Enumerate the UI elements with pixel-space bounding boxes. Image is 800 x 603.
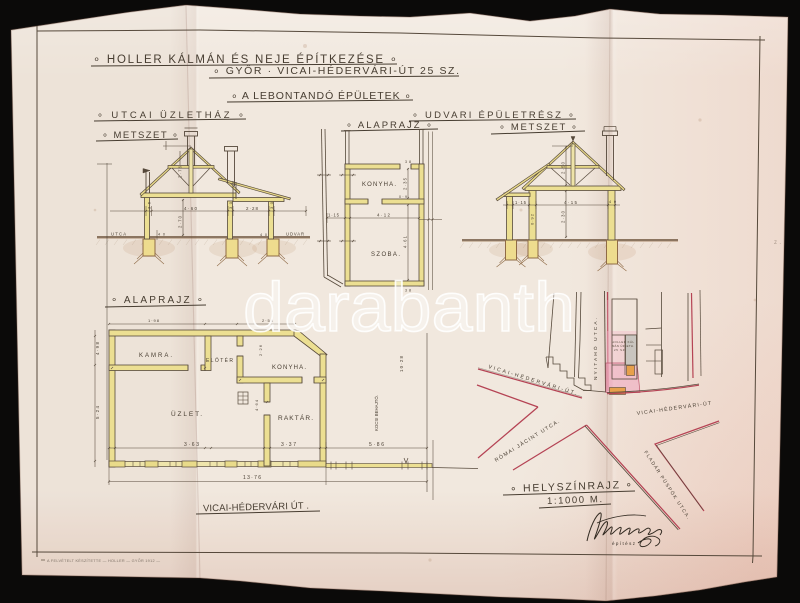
svg-text:4·61: 4·61 (403, 235, 408, 248)
svg-text:UTCA: UTCA (111, 232, 126, 237)
svg-text:1·15: 1·15 (328, 213, 340, 218)
svg-text:2·30: 2·30 (561, 210, 566, 223)
svg-text:darabanth: darabanth (243, 268, 575, 346)
svg-text:30: 30 (269, 201, 274, 209)
svg-text:5·24: 5·24 (95, 406, 100, 419)
svg-text:3·37: 3·37 (281, 442, 296, 448)
svg-text:30: 30 (228, 201, 233, 209)
svg-text:4·98: 4·98 (95, 342, 100, 355)
svg-text:13·76: 13·76 (243, 475, 261, 481)
svg-text:KONYHA.: KONYHA. (272, 365, 306, 371)
svg-text:2·76: 2·76 (178, 165, 183, 178)
svg-text:2·70: 2·70 (178, 215, 183, 228)
svg-text:2·28: 2·28 (246, 206, 259, 211)
svg-text:1·98: 1·98 (148, 318, 160, 323)
svg-text:0·92: 0·92 (530, 213, 535, 225)
svg-text:2·50: 2·50 (561, 161, 566, 174)
svg-text:3·63: 3·63 (184, 442, 199, 448)
svg-text:5·86: 5·86 (369, 442, 384, 448)
svg-text:36: 36 (147, 201, 152, 209)
svg-text:4·64: 4·64 (254, 399, 259, 411)
svg-text:∘ GYŐR · VICAI-HÉDERVÁRI-ÚT 25: ∘ GYŐR · VICAI-HÉDERVÁRI-ÚT 25 SZ. (213, 63, 459, 77)
svg-text:RAKTÁR.: RAKTÁR. (278, 413, 313, 422)
svg-text:4·15: 4·15 (564, 200, 578, 205)
svg-text:ELŐTÉR: ELŐTÉR (206, 357, 233, 364)
svg-text:4·60: 4·60 (184, 206, 198, 211)
svg-text:0·9: 0·9 (399, 195, 407, 199)
svg-text:KONYHA.: KONYHA. (362, 182, 396, 188)
svg-text:KOCSI BEHAJTÓ.: KOCSI BEHAJTÓ. (374, 395, 379, 431)
svg-text:10·28: 10·28 (399, 356, 404, 372)
svg-text:4·12: 4·12 (377, 213, 391, 218)
svg-text:1·15: 1·15 (515, 200, 527, 205)
svg-text:A FELVÉTELT KÉSZÍTETTE — HOLLE: A FELVÉTELT KÉSZÍTETTE — HOLLER — GYŐR 1… (47, 558, 160, 563)
svg-text:2·35: 2·35 (403, 177, 408, 190)
svg-text:UDVAR: UDVAR (286, 232, 304, 237)
svg-text:ÜZLET.: ÜZLET. (171, 410, 202, 418)
svg-text:25 SZ.: 25 SZ. (614, 348, 626, 352)
